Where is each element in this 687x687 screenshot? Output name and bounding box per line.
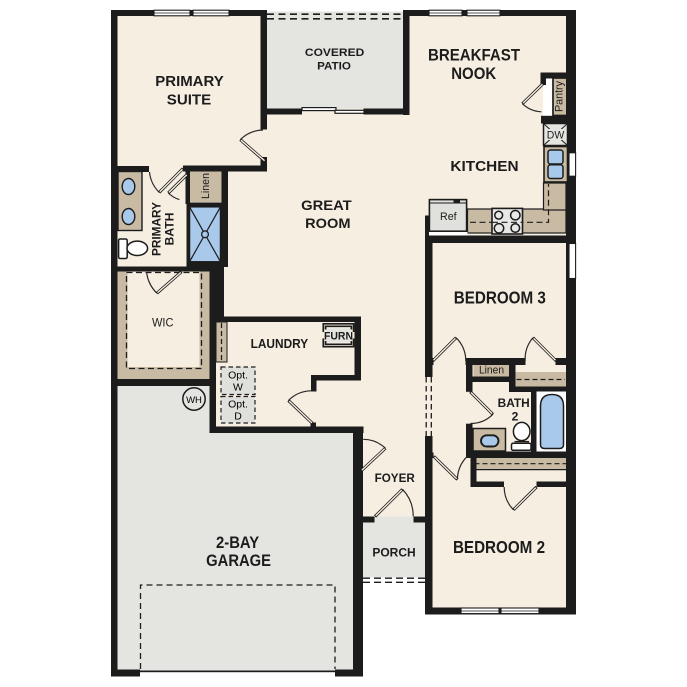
svg-text:BREAKFAST: BREAKFAST	[428, 46, 521, 65]
svg-text:W: W	[233, 382, 243, 394]
svg-text:NOOK: NOOK	[451, 64, 496, 83]
svg-text:Opt.: Opt.	[228, 370, 248, 382]
svg-text:DW: DW	[547, 130, 565, 142]
svg-text:Opt.: Opt.	[228, 399, 248, 411]
svg-text:BATH: BATH	[163, 213, 177, 246]
svg-text:BATH: BATH	[498, 396, 530, 410]
svg-text:BEDROOM 3: BEDROOM 3	[454, 288, 546, 308]
svg-text:PRIMARY: PRIMARY	[150, 202, 164, 256]
svg-text:LAUNDRY: LAUNDRY	[251, 337, 309, 351]
svg-text:2-BAY: 2-BAY	[216, 534, 259, 552]
svg-text:Ref: Ref	[440, 211, 457, 223]
svg-text:D: D	[234, 411, 242, 423]
svg-text:Linen: Linen	[479, 365, 504, 377]
svg-text:COVERED: COVERED	[305, 47, 364, 59]
svg-text:SUITE: SUITE	[167, 91, 211, 108]
svg-text:GREAT: GREAT	[301, 198, 352, 213]
svg-text:PATIO: PATIO	[317, 60, 351, 72]
svg-text:FOYER: FOYER	[375, 471, 415, 485]
svg-text:BEDROOM 2: BEDROOM 2	[453, 537, 545, 557]
svg-text:ROOM: ROOM	[305, 216, 350, 231]
svg-text:PORCH: PORCH	[372, 546, 415, 560]
svg-text:FURN: FURN	[324, 331, 353, 343]
svg-text:Linen: Linen	[200, 173, 212, 199]
svg-text:WIC: WIC	[152, 315, 174, 329]
svg-text:GARAGE: GARAGE	[206, 552, 271, 570]
svg-text:Pantry: Pantry	[554, 80, 566, 112]
svg-text:2: 2	[512, 409, 519, 423]
svg-text:KITCHEN: KITCHEN	[450, 158, 518, 175]
svg-text:PRIMARY: PRIMARY	[155, 73, 223, 90]
svg-text:WH: WH	[186, 395, 202, 406]
